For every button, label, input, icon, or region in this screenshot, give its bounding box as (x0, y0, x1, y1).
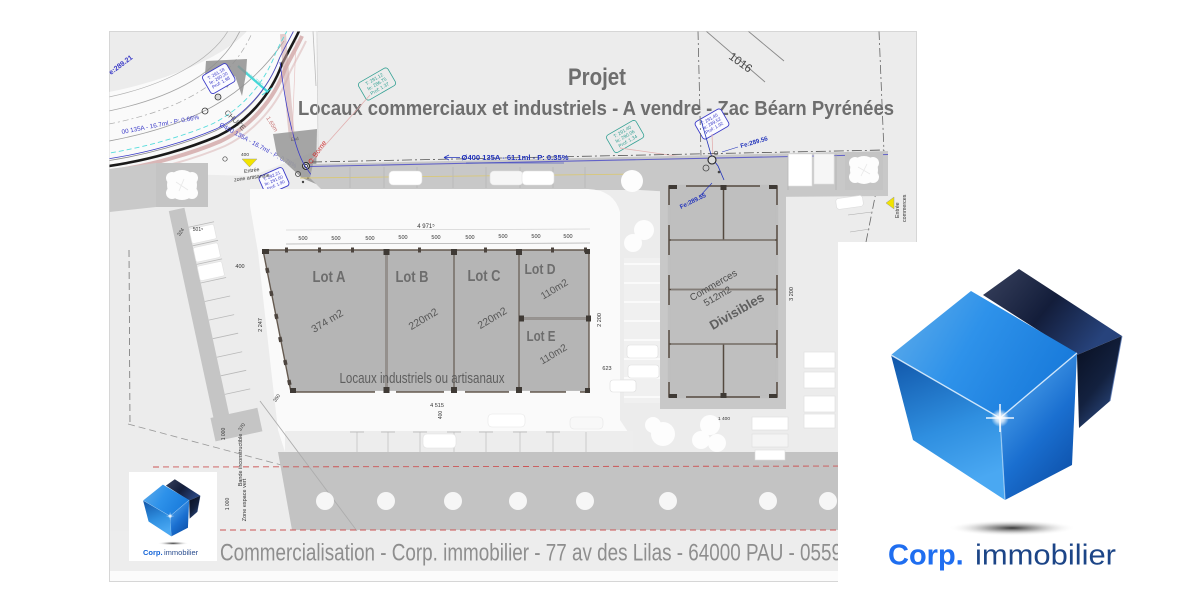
svg-text:400: 400 (235, 264, 244, 270)
svg-text:400: 400 (438, 411, 444, 420)
svg-text:Entrée: Entrée (895, 202, 901, 218)
svg-text:Corp.: Corp. (143, 548, 163, 557)
svg-text:Lot E: Lot E (527, 328, 556, 345)
svg-text:501⁵: 501⁵ (193, 227, 203, 233)
svg-text:500: 500 (465, 235, 474, 241)
svg-text:Corp.: Corp. (888, 540, 964, 572)
svg-text:4 971⁵: 4 971⁵ (417, 223, 435, 230)
svg-text:2 247: 2 247 (258, 318, 264, 332)
svg-text:500: 500 (531, 234, 540, 240)
svg-text:500: 500 (398, 235, 407, 241)
svg-text:Ø400 135A - 61.1ml - P: 0.35%: Ø400 135A - 61.1ml - P: 0.35% (462, 153, 569, 162)
svg-text:Lot A: Lot A (313, 269, 346, 286)
svg-text:500: 500 (365, 236, 374, 242)
svg-text:Locaux industriels ou artisana: Locaux industriels ou artisanaux (340, 371, 506, 387)
svg-text:500: 500 (563, 234, 572, 240)
svg-text:3 200: 3 200 (789, 287, 795, 301)
svg-text:4 515: 4 515 (430, 403, 444, 409)
svg-text:500: 500 (431, 235, 440, 241)
svg-text:Zone espace vert: Zone espace vert (242, 478, 248, 521)
svg-text:Commercialisation - Corp. immo: Commercialisation - Corp. immobilier - 7… (220, 540, 842, 567)
svg-text:Lot C: Lot C (468, 268, 501, 285)
svg-text:2 200: 2 200 (597, 313, 603, 327)
svg-text:Lot B: Lot B (396, 269, 429, 286)
svg-text:500: 500 (331, 236, 340, 242)
svg-text:Lot D: Lot D (525, 261, 556, 278)
svg-text:1 000: 1 000 (225, 498, 231, 511)
svg-text:1 000: 1 000 (221, 428, 227, 441)
svg-text:1 400: 1 400 (718, 416, 730, 422)
svg-text:Projet: Projet (568, 64, 626, 91)
svg-text:Bande inconstructible: Bande inconstructible (238, 434, 244, 487)
svg-text:immobilier: immobilier (164, 548, 199, 557)
svg-text:500: 500 (498, 234, 507, 240)
svg-text:immobilier: immobilier (975, 540, 1116, 572)
svg-text:623: 623 (602, 366, 611, 372)
svg-text:commerces: commerces (902, 194, 908, 222)
svg-text:400: 400 (241, 152, 249, 158)
svg-text:500: 500 (298, 236, 307, 242)
svg-text:Locaux commerciaux et industri: Locaux commerciaux et industriels - A ve… (298, 97, 894, 120)
